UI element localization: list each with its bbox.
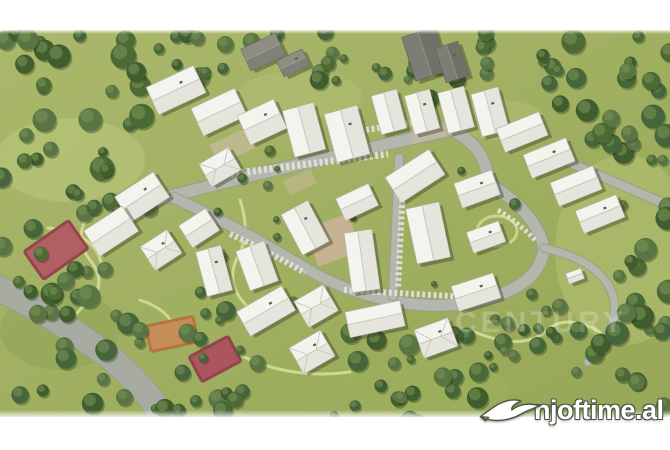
njoftime-watermark: njoftime.al [478, 392, 664, 428]
top-edge-fade [0, 29, 670, 34]
brand-watermark-text: njoftime.al [534, 395, 664, 426]
dove-icon [478, 392, 544, 428]
listing-photo: CENTURY njoftime.al [0, 0, 670, 450]
faint-watermark-text: CENTURY [455, 306, 627, 339]
site-plan-render: CENTURY [0, 0, 670, 450]
top-white-margin [0, 0, 670, 30]
